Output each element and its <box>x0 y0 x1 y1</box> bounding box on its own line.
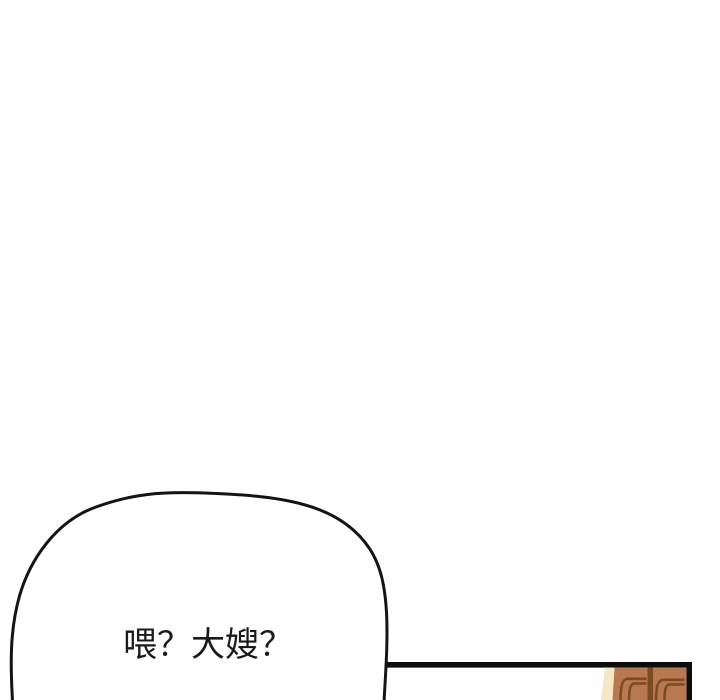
speech-bubble <box>11 493 387 700</box>
artwork-finger-gap <box>648 668 654 700</box>
speech-bubble-shape <box>11 493 387 700</box>
artwork-skin-highlight <box>601 668 615 700</box>
comic-page: 喂？大嫂？ <box>0 0 720 700</box>
comic-line-art <box>0 0 720 700</box>
speech-bubble-text: 喂？大嫂？ <box>115 628 301 662</box>
